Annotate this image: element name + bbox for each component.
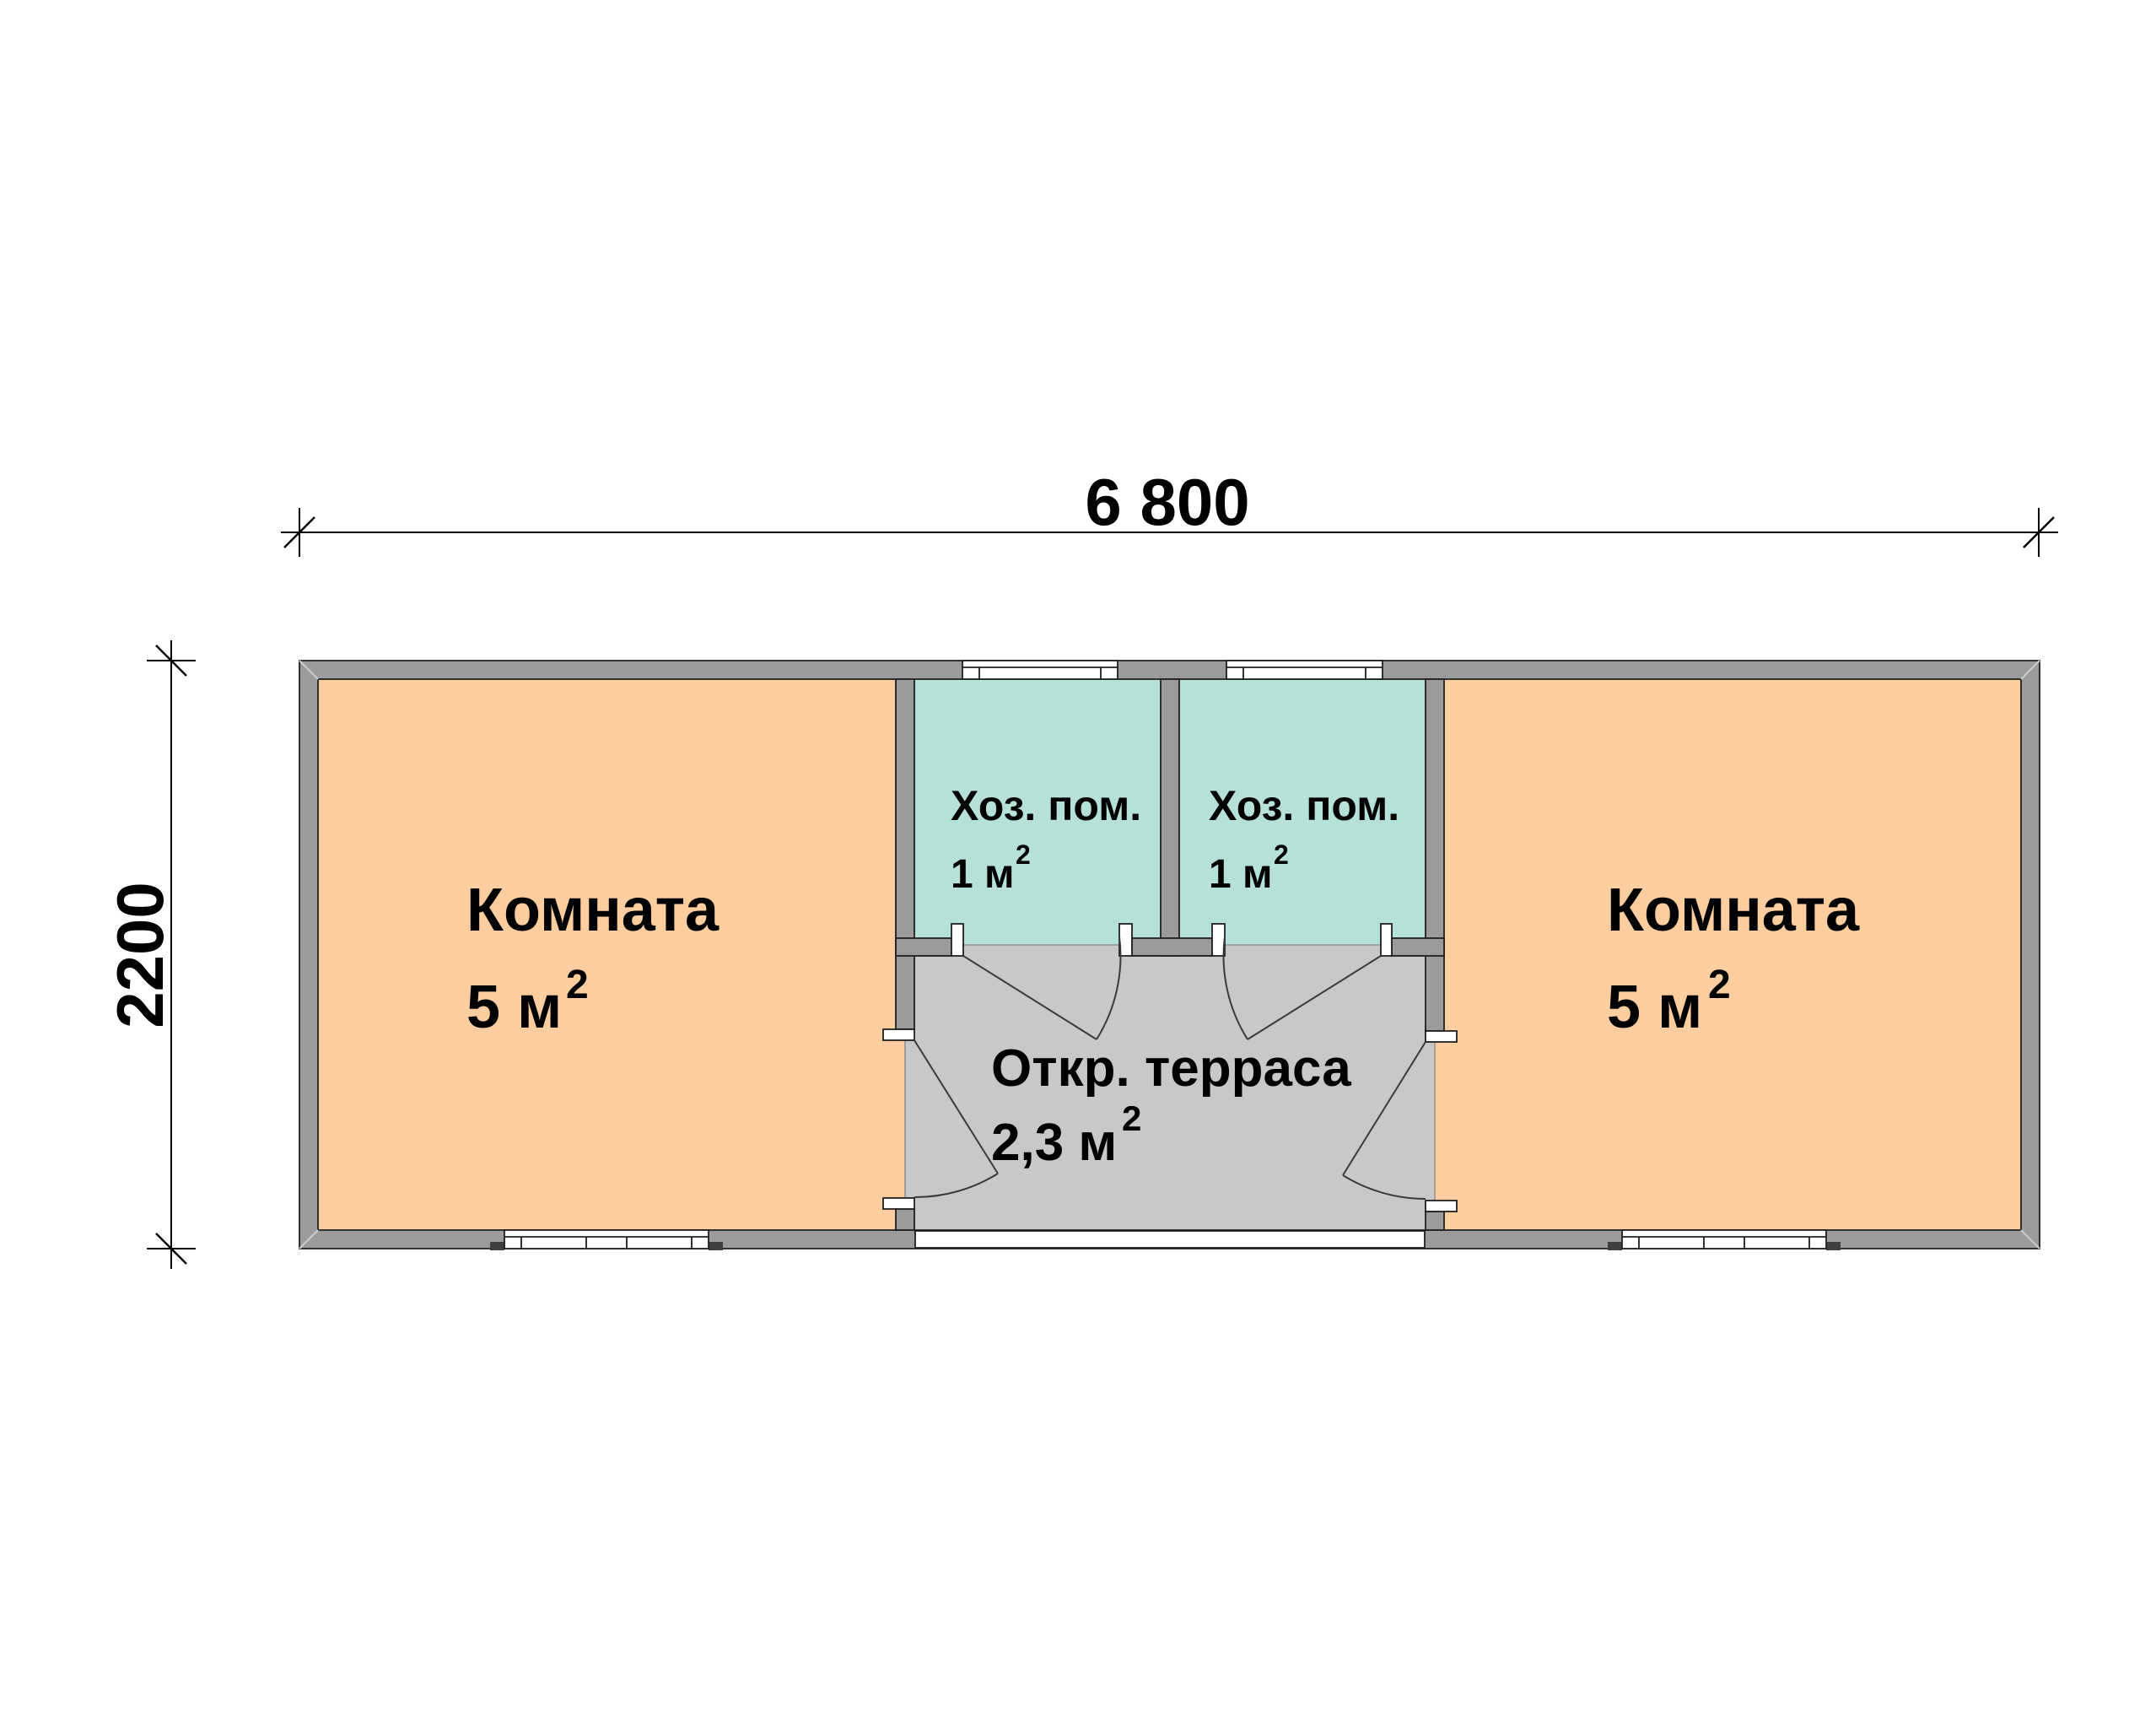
wall-utility-bottom-left-seg [896, 938, 951, 956]
wall-right-partition-lower [1426, 1212, 1444, 1230]
room-left-name: Комната [466, 877, 720, 944]
utility-left-area: 1 м [951, 852, 1015, 897]
jamb-room-left-b [883, 1198, 914, 1209]
terrace-name: Откр. терраса [991, 1039, 1351, 1098]
wall-left-partition-lower [896, 1209, 914, 1230]
jamb-room-right-a [1426, 1031, 1457, 1042]
floor-plan-canvas: 6 800 2200 Комната 5 м 2 Комната 5 м 2 Х… [0, 0, 2156, 1727]
dimension-left: 2200 [103, 640, 196, 1269]
wall-utility-bottom-right-seg [1392, 938, 1444, 956]
window-sill-stub [1608, 1242, 1622, 1250]
window-sill-stub [1826, 1242, 1841, 1250]
room-right-area-sup: 2 [1708, 963, 1731, 1007]
wall-utility-divider [1161, 679, 1179, 956]
window-utility-left [962, 661, 1118, 679]
terrace-area: 2,3 м [991, 1114, 1117, 1172]
room-right-name: Комната [1607, 877, 1860, 944]
window-sill-stub [709, 1242, 723, 1250]
terrace-area-sup: 2 [1122, 1098, 1141, 1138]
wall-right-partition-upper [1426, 679, 1444, 1031]
terrace-open-edge [915, 1231, 1425, 1248]
room-left-floor [318, 679, 905, 1230]
room-right-area: 5 м [1607, 974, 1702, 1041]
utility-left-name: Хоз. пом. [951, 782, 1141, 829]
room-left-area: 5 м [466, 974, 562, 1041]
jamb-room-left-a [883, 1029, 914, 1040]
utility-left-area-sup: 2 [1016, 839, 1031, 870]
wall-utility-bottom-mid-seg [1132, 938, 1212, 956]
dimension-top: 6 800 [281, 465, 2058, 557]
utility-right-name: Хоз. пом. [1209, 782, 1399, 829]
room-right-floor [1435, 679, 2021, 1230]
window-frame [504, 1230, 709, 1249]
floor-plan-drawing: 6 800 2200 Комната 5 м 2 Комната 5 м 2 Х… [0, 0, 2156, 1727]
jamb-utility-left-a [951, 924, 963, 956]
wall-left-partition-upper [896, 679, 914, 1029]
utility-right-area-sup: 2 [1274, 839, 1289, 870]
window-sill-stub [490, 1242, 504, 1250]
window-frame [1622, 1230, 1826, 1249]
window-frame [962, 661, 1118, 679]
window-room-right [1622, 1230, 1826, 1249]
jamb-utility-right-b [1381, 924, 1392, 956]
dimension-width-label: 6 800 [1085, 465, 1249, 539]
room-left-area-sup: 2 [566, 963, 589, 1007]
window-room-left [504, 1230, 709, 1249]
window-utility-right [1226, 661, 1383, 679]
jamb-room-right-b [1426, 1201, 1457, 1212]
window-frame [1226, 661, 1383, 679]
dimension-height-label: 2200 [103, 882, 177, 1028]
utility-right-area: 1 м [1209, 852, 1273, 897]
